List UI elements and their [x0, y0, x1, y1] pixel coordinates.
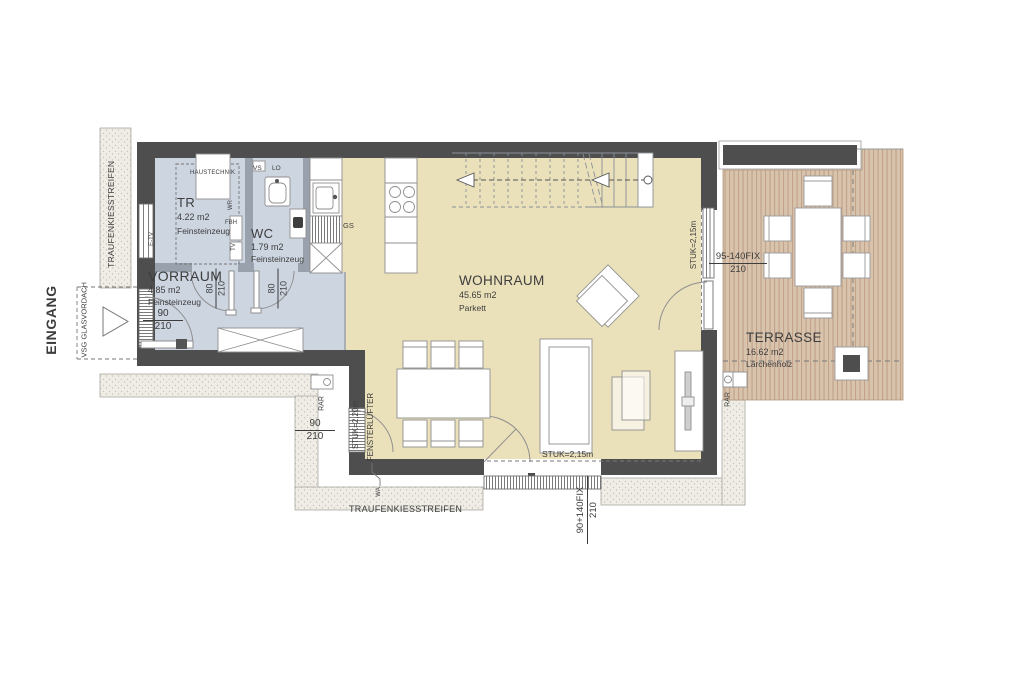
canopy-label: VSG GLASVORDACH [80, 265, 88, 375]
tr-door-dimension: 80 210 [206, 271, 227, 307]
room-tr-area: 4.22 m2 [177, 213, 210, 222]
room-terrasse-floor: Lärchenholz [746, 360, 792, 369]
south-window-height: 210 [588, 502, 599, 518]
west-window-height: 210 [307, 431, 324, 442]
wc-door-width: 80 [268, 269, 279, 309]
stuk-east-label: STUK=2,15m [690, 205, 698, 285]
e-tv-label: E-TV [149, 224, 155, 254]
kitchen-sink [313, 183, 339, 213]
tv-sideboard [675, 351, 703, 451]
room-wc-floor: Feinsteinzeug [251, 255, 304, 264]
entry-door-dimension: 90 210 [145, 309, 181, 332]
east-window-dimension: 95-140FIX 210 [711, 252, 765, 274]
stuk-west-label: STUK=2,20m [352, 385, 360, 465]
partition-corridor-b [238, 263, 254, 272]
floorplan-drawing [0, 0, 1024, 683]
room-tr-floor: Feinsteinzeug [177, 227, 230, 236]
dining-table [397, 369, 490, 418]
coffee-tables [612, 371, 650, 430]
faucet-icon [333, 195, 337, 199]
sofa [540, 339, 592, 453]
gravel-bottom-label: TRAUFENKIESSTREIFEN [349, 505, 462, 514]
entry-door-width: 90 [143, 309, 183, 321]
room-terrasse-area: 16.62 m2 [746, 348, 784, 357]
gravel-strip-entry [100, 374, 318, 397]
wa-label: WA [376, 483, 382, 501]
east-window-height: 210 [730, 264, 746, 275]
dining-chairs-top [403, 341, 483, 368]
east-window-width: 95-140FIX [709, 252, 767, 264]
rar-left-label: RAR [319, 391, 326, 417]
floorplan-page: TRAUFENKIESSTREIFEN TRAUFENKIESSTREIFEN … [0, 0, 1024, 683]
dining-chairs-bottom [403, 420, 483, 447]
gravel-left-label: TRAUFENKIESSTREIFEN [107, 149, 116, 279]
room-vorraum-floor: Feinsteinzeug [148, 298, 201, 307]
washbasin [265, 177, 290, 206]
fbh-label: FBH [225, 220, 237, 226]
entry-door-height: 210 [155, 321, 172, 332]
stuk-south-label: STUK=2,15m [542, 450, 593, 459]
fensterluefter-label: FENSTERLÜFTER [367, 382, 375, 472]
room-wohnraum-floor: Parkett [459, 304, 486, 313]
tr-door-width: 80 [206, 269, 217, 309]
terrace-post [835, 347, 868, 380]
terrace-parapet-wall [723, 145, 857, 165]
terrace-table [795, 208, 841, 286]
south-window-dimension: 90+140FIX 210 [576, 478, 598, 542]
room-vorraum-area: 4.85 m2 [148, 286, 181, 295]
wall-east-upper [701, 142, 717, 210]
kitchen-counter [310, 158, 342, 273]
room-terrasse-name: TERRASSE [746, 331, 822, 345]
wr-label: WR [228, 195, 234, 215]
rar-box-right [723, 372, 747, 387]
entrance-arrow-icon [103, 307, 128, 336]
gravel-strip-right [722, 400, 745, 505]
wc-door-dimension: 80 210 [268, 271, 289, 307]
kitchen-island [385, 158, 417, 273]
dishwasher [310, 216, 342, 243]
gravel-strip-step [295, 396, 318, 488]
tv-label: TV [231, 237, 237, 257]
room-wohnraum-area: 45.65 m2 [459, 291, 497, 300]
south-window-width: 90+140FIX [576, 476, 588, 544]
rar-box-left [311, 375, 333, 389]
room-wc-area: 1.79 m2 [251, 243, 284, 252]
west-window-width: 90 [295, 419, 335, 431]
room-wohnraum-name: WOHNRAUM [459, 274, 545, 288]
toilet [290, 209, 306, 238]
partition-corridor-c [298, 263, 310, 272]
haustechnik-label: HAUSTECHNIK [190, 170, 235, 176]
tr-door-height: 210 [217, 281, 227, 296]
room-wc-name: WC [251, 227, 273, 240]
room-tr-name: TR [177, 196, 195, 209]
entrance-label: EINGANG [44, 270, 58, 370]
rar-right-label: RAR [725, 387, 732, 413]
wc-door-height: 210 [279, 281, 289, 296]
east-door-panel [704, 281, 713, 329]
vs-label: VS [253, 166, 262, 173]
gs-label: GS [343, 222, 354, 230]
lo-label: LO [272, 166, 281, 173]
vorraum-wardrobe [218, 328, 303, 352]
west-window-dimension: 90 210 [297, 419, 333, 442]
haustechnik-unit [196, 154, 230, 199]
